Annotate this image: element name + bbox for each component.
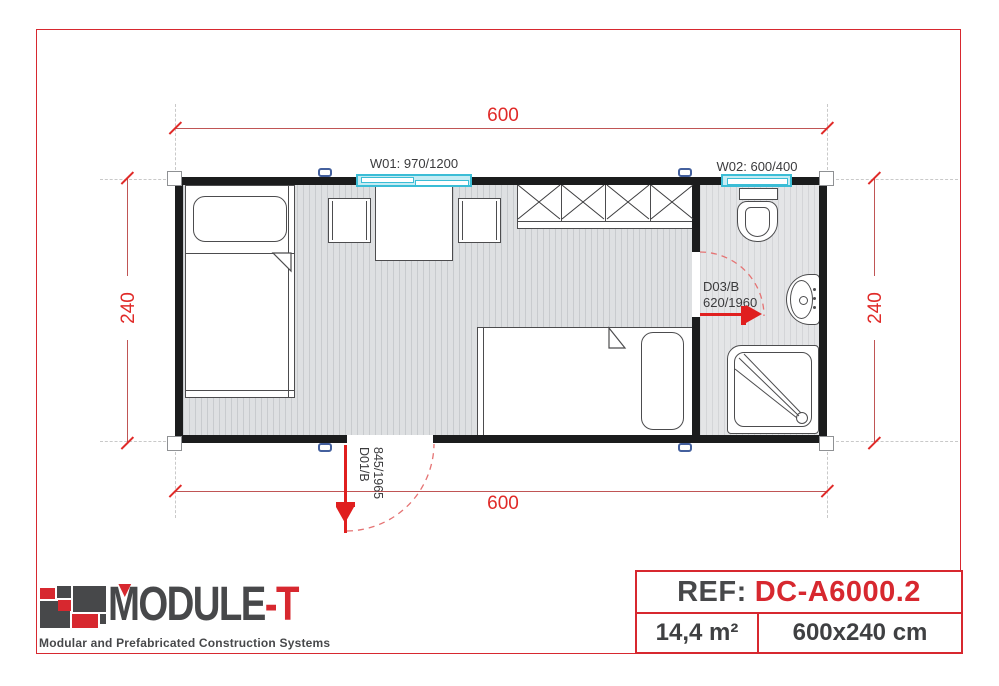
brand-wordmark: MODULE-T [108,579,298,633]
extension-line [827,452,828,518]
extension-line [827,104,828,170]
chair-armrests [332,201,367,240]
door-d01-label-line2: 845/1965 [371,447,385,509]
wall-clip [318,443,332,452]
wall-segment [175,177,183,443]
bed-frame-line [186,390,294,391]
window-w02-label: W02: 600/400 [697,159,817,175]
window-w01 [356,174,472,187]
specs-row: 14,4 m² 600x240 cm [637,614,961,652]
pillow [641,332,684,430]
dimension-line-bottom [175,491,827,492]
corner-post [167,171,182,186]
brand-logo-icon [40,586,106,628]
dimension-value-top: 600 [475,106,531,126]
wall-segment [819,177,827,443]
dimension-value-bottom: 600 [475,494,531,514]
logo-mosaic-block [100,614,106,624]
blanket-edge [186,253,294,254]
logo-m-wedge [118,584,131,597]
corner-post [167,436,182,451]
extension-line [100,441,166,442]
extension-line [100,179,166,180]
door-d03-arrow-head [746,305,762,323]
wall-clip [678,168,692,177]
shower-drain [796,412,808,424]
toilet-bowl-inner [745,207,770,237]
area-cell: 14,4 m² [637,614,759,652]
door-d03-label-line1: D03/B [703,279,757,295]
sink-drain [799,296,808,305]
door-d01-arrow-head [336,507,354,523]
dimension-value-right: 240 [866,276,886,340]
reference-row: REF: DC-A6000.2 [637,572,961,614]
pillow [193,196,287,242]
brand-wordmark-accent: -T [265,578,298,631]
wardrobe-front [517,221,695,229]
window-w02 [721,174,792,187]
bed-frame-line [483,328,484,435]
wall-clip [678,443,692,452]
ref-label: REF: [677,576,747,609]
wall-segment [470,177,723,185]
partition-wall [692,317,700,435]
wardrobe-divider [561,184,562,221]
size-cell: 600x240 cm [759,614,961,652]
bed-frame-line [288,186,289,397]
logo-mosaic-block [58,600,71,611]
logo-mosaic-block [73,586,106,612]
extension-line [836,179,958,180]
logo-mosaic-block [72,614,98,628]
corner-post [819,171,834,186]
wardrobe-divider [650,184,651,221]
floor-plan-sheet: 600 600 240 240 [0,0,999,686]
extension-line [175,452,176,518]
ref-value: DC-A6000.2 [755,576,921,609]
sink-tap-dot [813,306,816,309]
sink-tap-dot [813,297,816,300]
window-w01-label: W01: 970/1200 [354,156,474,172]
window-pane [415,180,469,186]
wall-segment [175,435,347,443]
wardrobe-divider [605,184,606,221]
brand-wordmark-main: MODULE [108,578,265,631]
wall-clip [318,168,332,177]
dimension-line-top [175,128,827,129]
door-d01-label: D01/B 845/1965 [357,447,385,509]
corner-post [819,436,834,451]
window-pane [727,178,788,185]
wall-segment [175,177,358,185]
sink-tap-dot [813,288,816,291]
brand-tagline: Modular and Prefabricated Construction S… [39,636,339,650]
wall-segment [433,435,827,443]
partition-wall [692,185,700,252]
logo-mosaic-block [40,588,55,599]
window-pane [361,177,414,183]
reference-box: REF: DC-A6000.2 14,4 m² 600x240 cm [635,570,963,654]
chair-left [328,198,371,243]
extension-line [175,104,176,170]
logo-mosaic-block [57,586,71,598]
table [375,185,453,261]
toilet-tank [739,188,778,200]
extension-line [836,441,958,442]
chair-right [458,198,501,243]
chair-armrests [462,201,497,240]
door-d01-label-line1: D01/B [357,447,371,509]
dimension-value-left: 240 [119,276,139,340]
